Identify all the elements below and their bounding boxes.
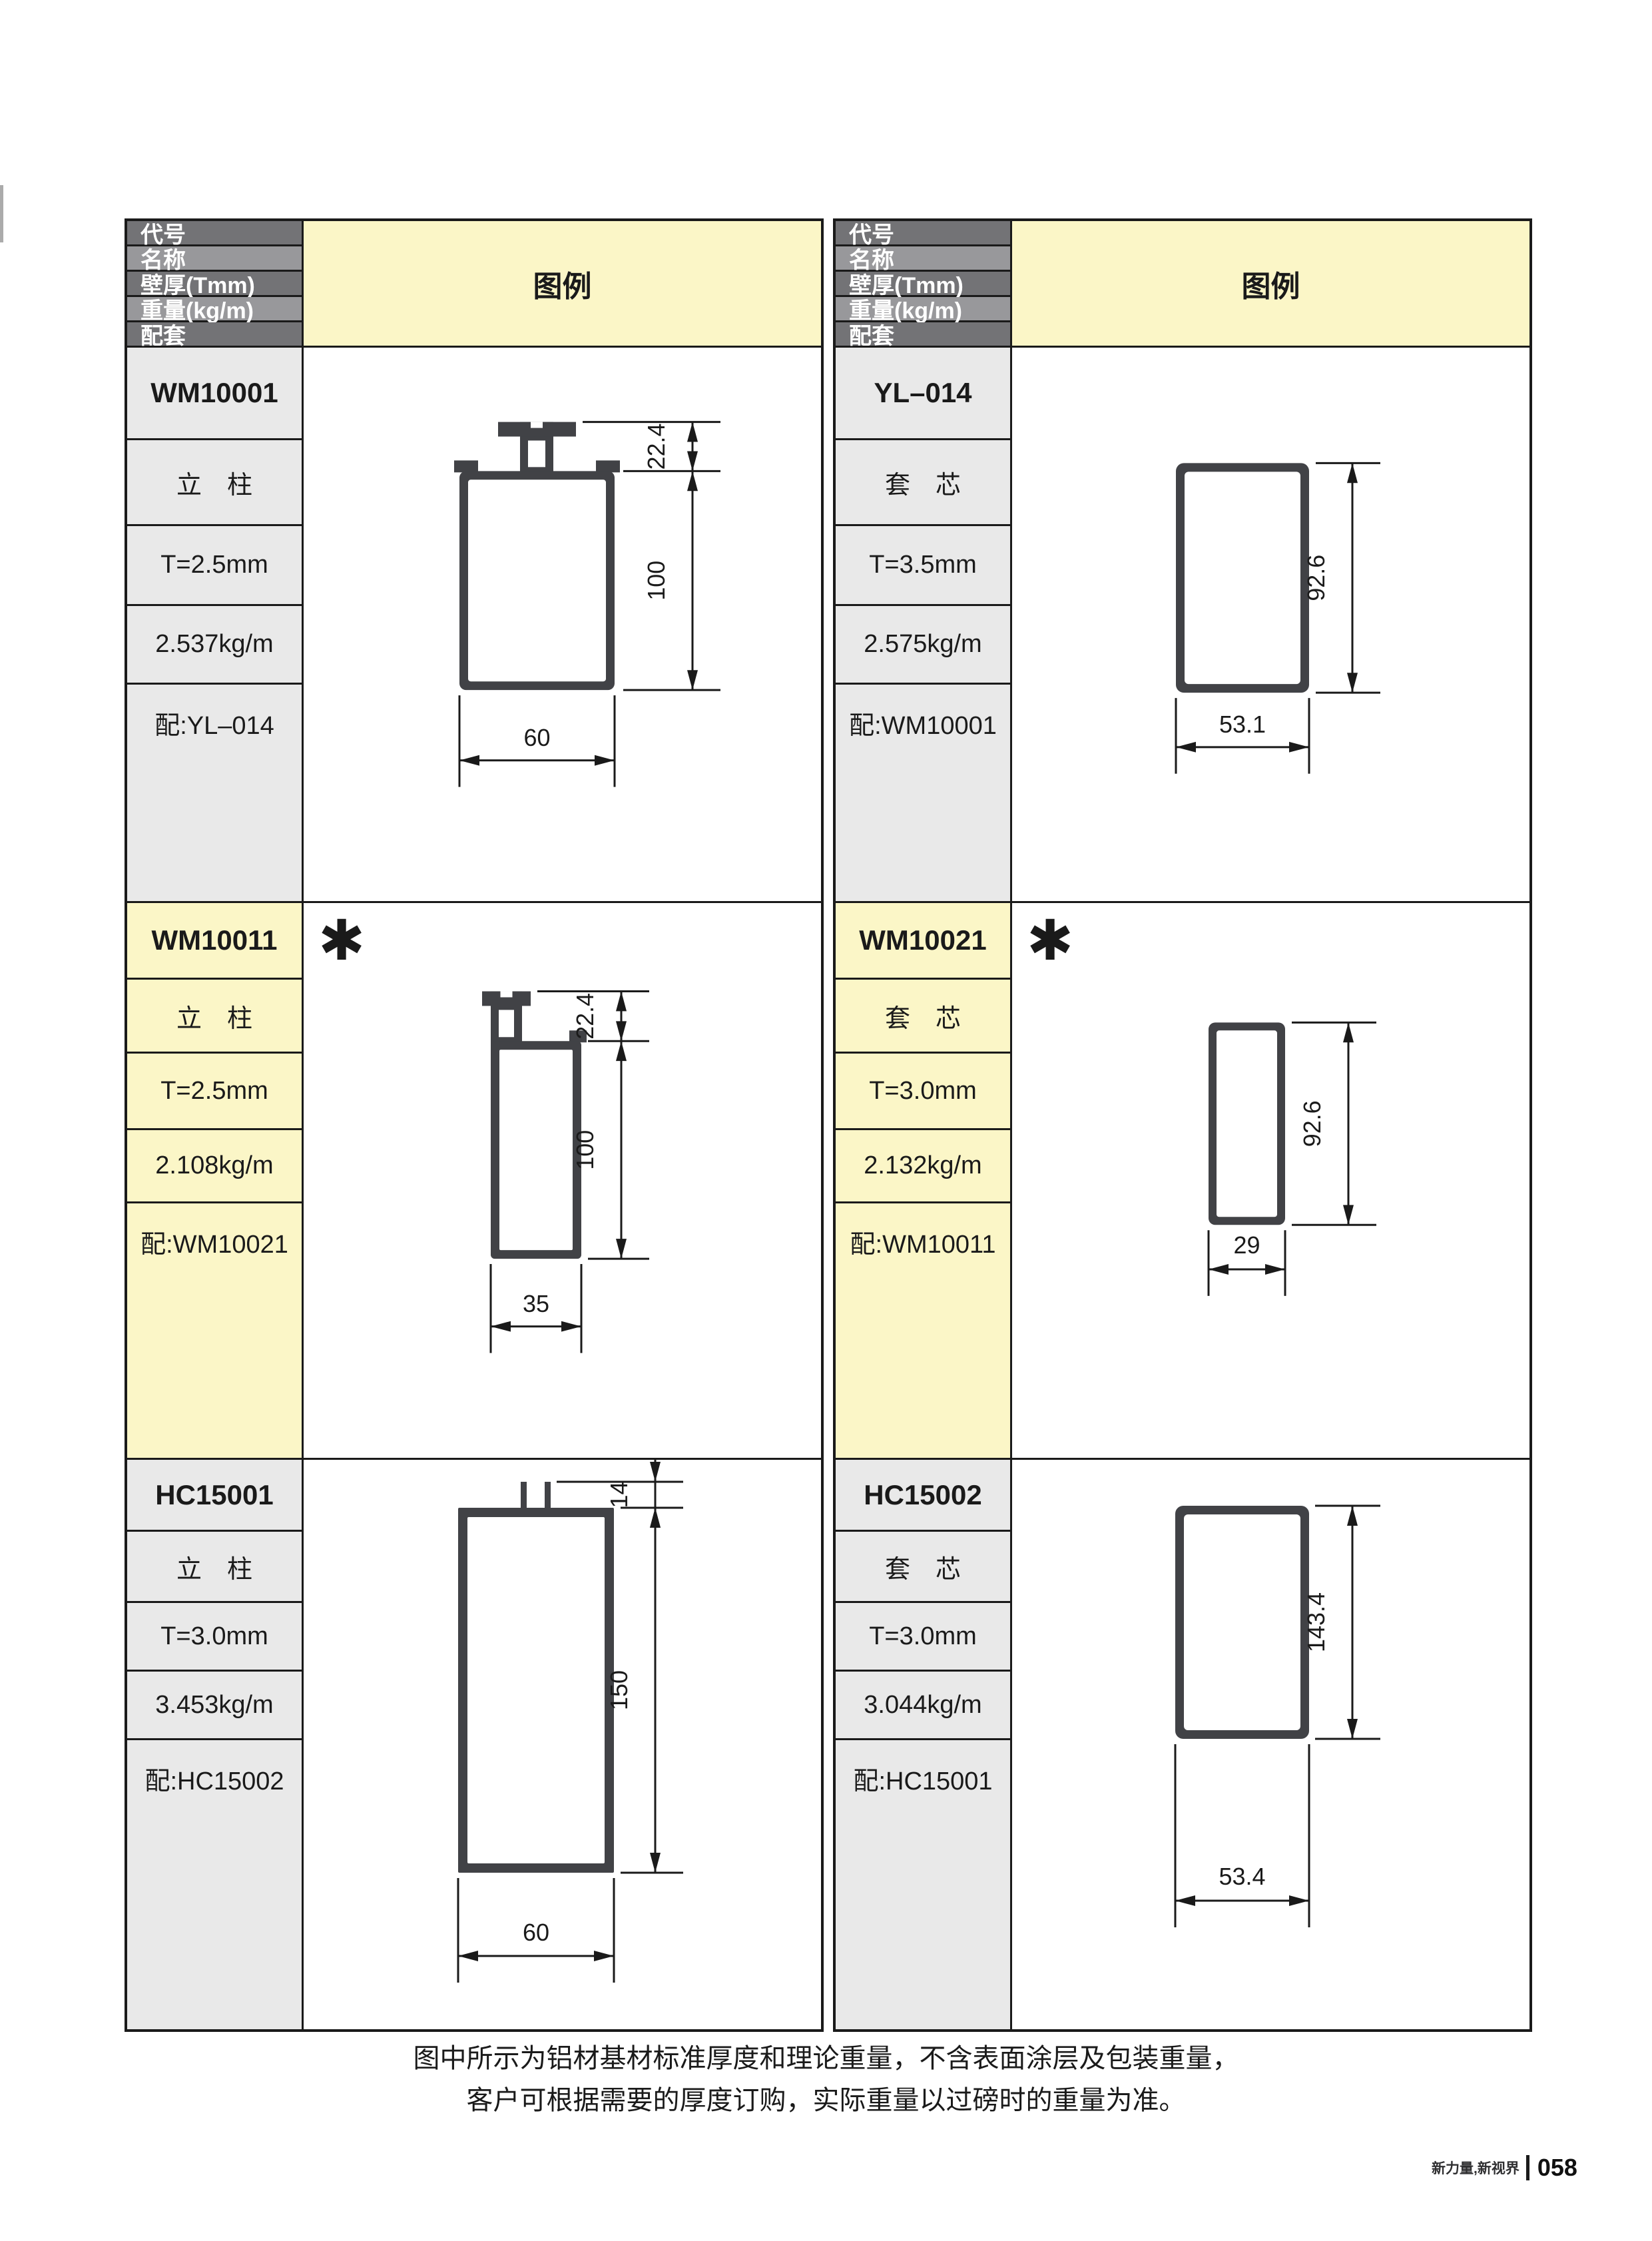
- spec-thickness: T=3.5mm: [836, 526, 1012, 606]
- profile-drawing-cell: 92.653.1: [1012, 348, 1529, 903]
- profile-table-left: 代号 名称 壁厚(Tmm) 重量(kg/m) 配套 图例 WM10001 立 柱…: [125, 218, 824, 2032]
- spec-weight: 3.044kg/m: [836, 1672, 1012, 1740]
- spec-thickness: T=3.0mm: [836, 1054, 1012, 1130]
- spec-name: 套 芯: [836, 980, 1012, 1054]
- spec-weight: 2.537kg/m: [127, 606, 304, 685]
- profile-cross-section-drawing: 92.653.1: [1012, 348, 1529, 901]
- spec-weight: 2.575kg/m: [836, 606, 1012, 685]
- spec-code: WM10021: [836, 903, 1012, 980]
- spec-name: 套 芯: [836, 440, 1012, 526]
- catalog-page: 代号 名称 壁厚(Tmm) 重量(kg/m) 配套 图例 WM10001 立 柱…: [0, 0, 1652, 2241]
- svg-text:53.4: 53.4: [1219, 1863, 1265, 1890]
- page-edge-mark: [0, 185, 3, 242]
- profile-table-right: 代号 名称 壁厚(Tmm) 重量(kg/m) 配套 图例 YL–014 套 芯 …: [833, 218, 1532, 2032]
- footnote-line2: 客户可根据需要的厚度订购，实际重量以过磅时的重量为准。: [0, 2080, 1652, 2122]
- profile-drawing-cell: 22.410060: [304, 348, 821, 903]
- profile-drawing-cell: ✱ 92.629: [1012, 903, 1529, 1460]
- svg-text:14: 14: [605, 1481, 633, 1508]
- svg-text:92.6: 92.6: [1302, 555, 1330, 601]
- spec-code: HC15002: [836, 1460, 1012, 1532]
- spec-name: 立 柱: [127, 440, 304, 526]
- svg-text:22.4: 22.4: [643, 424, 670, 470]
- svg-text:60: 60: [523, 724, 550, 751]
- footer-divider: [1526, 2155, 1529, 2180]
- profile-cross-section-drawing: 143.453.4: [1012, 1460, 1529, 2029]
- profile-drawing-cell: 143.453.4: [1012, 1460, 1529, 2029]
- svg-text:29: 29: [1233, 1231, 1260, 1259]
- spec-thickness: T=2.5mm: [127, 526, 304, 606]
- spec-code: WM10011: [127, 903, 304, 980]
- spec-code: YL–014: [836, 348, 1012, 440]
- profile-drawing-cell: ✱ 22.410035: [304, 903, 821, 1460]
- footnote: 图中所示为铝材基材标准厚度和理论重量，不含表面涂层及包装重量， 客户可根据需要的…: [0, 2038, 1652, 2122]
- spec-name: 套 芯: [836, 1532, 1012, 1603]
- spec-thickness: T=2.5mm: [127, 1054, 304, 1130]
- spec-weight: 2.132kg/m: [836, 1130, 1012, 1203]
- spec-match: 配:WM10011: [836, 1203, 1012, 1460]
- profile-drawing-cell: 1415060: [304, 1460, 821, 2029]
- spec-match: 配:WM10001: [836, 685, 1012, 903]
- svg-text:143.4: 143.4: [1302, 1592, 1330, 1652]
- page-footer: 新力量,新视界 058: [1432, 2154, 1577, 2182]
- svg-text:60: 60: [523, 1919, 549, 1946]
- brand-slogan: 新力量,新视界: [1432, 2158, 1519, 2178]
- spec-match: 配:HC15002: [127, 1740, 304, 2029]
- spec-thickness: T=3.0mm: [127, 1603, 304, 1672]
- svg-text:92.6: 92.6: [1298, 1100, 1326, 1147]
- spec-code: WM10001: [127, 348, 304, 440]
- svg-text:22.4: 22.4: [571, 993, 599, 1040]
- spec-weight: 3.453kg/m: [127, 1672, 304, 1740]
- svg-text:100: 100: [571, 1130, 599, 1170]
- spec-name: 立 柱: [127, 1532, 304, 1603]
- spec-code: HC15001: [127, 1460, 304, 1532]
- header-match: 配套: [836, 322, 1012, 348]
- legend-header: 图例: [1012, 221, 1529, 348]
- profile-cross-section-drawing: 22.410060: [304, 348, 821, 901]
- spec-name: 立 柱: [127, 980, 304, 1054]
- profile-cross-section-drawing: 1415060: [304, 1460, 821, 2029]
- page-number: 058: [1537, 2154, 1577, 2182]
- spec-match: 配:YL–014: [127, 685, 304, 903]
- svg-text:100: 100: [643, 561, 670, 601]
- header-match: 配套: [127, 322, 304, 348]
- spec-match: 配:WM10021: [127, 1203, 304, 1460]
- spec-match: 配:HC15001: [836, 1740, 1012, 2029]
- footnote-line1: 图中所示为铝材基材标准厚度和理论重量，不含表面涂层及包装重量，: [0, 2038, 1652, 2080]
- spec-thickness: T=3.0mm: [836, 1603, 1012, 1672]
- svg-text:150: 150: [605, 1670, 633, 1710]
- legend-header: 图例: [304, 221, 821, 348]
- profile-cross-section-drawing: 22.410035: [304, 903, 821, 1458]
- svg-text:53.1: 53.1: [1219, 711, 1266, 738]
- spec-weight: 2.108kg/m: [127, 1130, 304, 1203]
- svg-text:35: 35: [523, 1290, 549, 1317]
- profile-cross-section-drawing: 92.629: [1012, 903, 1529, 1458]
